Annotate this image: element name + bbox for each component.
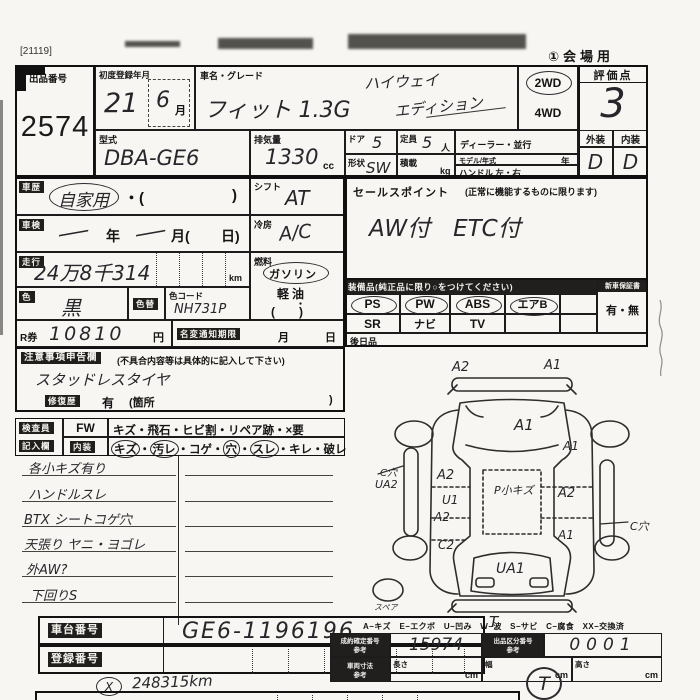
inspection-month-hand: 一 — [129, 217, 166, 249]
fw-cell: FW — [63, 418, 108, 437]
equip-navi-cell: ナビ — [400, 314, 450, 333]
width-label: 幅 — [485, 659, 493, 670]
diagram-label-right-quarter: A1 — [558, 528, 574, 542]
page-title-redacted — [218, 38, 313, 49]
margin-scribble — [652, 298, 670, 378]
note-underline — [22, 526, 176, 527]
car-name-box: 車名・グレード フィット 1.3G ハイウェイ エディション — [195, 65, 518, 130]
exterior-grade: D — [579, 148, 612, 176]
diagram-label-hood: A1 — [514, 416, 534, 434]
dims-label: 車両寸法 — [331, 662, 389, 671]
auction-no-label: 出品番号 — [29, 71, 67, 85]
first-reg-month-cell: 6 月 — [148, 79, 190, 127]
wheel-rear-right — [595, 536, 629, 560]
shape-label: 形状 — [348, 157, 365, 169]
car-name-hand2: エディション — [393, 91, 484, 121]
height-cell: 高さ cm — [572, 657, 662, 682]
rticket-label: R券 — [20, 329, 37, 344]
ref1-label: 成約確定番号 — [331, 637, 389, 646]
chassis-label-cell: 車台番号 — [40, 618, 164, 643]
item-separator: ・ — [178, 444, 190, 456]
first-reg-month: 6 — [156, 88, 170, 113]
inspection-box: 車検 一 年 一 月( 日) — [15, 215, 250, 252]
first-reg-year: 21 — [104, 88, 138, 119]
history-label: 車歴 — [19, 181, 44, 193]
diagram-label-tailgate: UA1 — [496, 561, 525, 577]
cell-divider — [382, 695, 383, 700]
fw-label: FW — [64, 419, 107, 436]
diagram-label-right-door: A2 — [558, 486, 575, 501]
warranty-value: 有・無 — [598, 295, 647, 325]
warranty-label: 新車保証書 — [598, 281, 647, 292]
equip-ps: PS — [346, 295, 399, 313]
item-separator: ・ — [212, 444, 224, 456]
drive-type-box: 2WD 4WD — [518, 65, 578, 130]
diagram-label-left-door2: A2 — [434, 510, 450, 524]
dealer-box: ディーラー・並行 — [455, 130, 578, 154]
inspection-year-label: 年 — [106, 226, 120, 246]
ref1-value-cell: 15974 — [390, 633, 482, 657]
color-value: 黒 — [61, 292, 81, 321]
color-code-label: 色コード — [169, 290, 203, 302]
reference-table: 成約確定番号 参考 15974 出品区分番号 参考 0001 車両寸法 参考 長… — [330, 633, 662, 682]
shift-label: シフト — [254, 180, 281, 193]
interior-grade: D — [614, 148, 647, 176]
inspection-label: 車検 — [19, 219, 44, 231]
ref2-value-cell: 0001 — [544, 633, 662, 657]
later-items-label: 後日品 — [350, 335, 377, 348]
inspector-rowhead1: 検査員 — [19, 422, 54, 434]
exterior-header: 外装 — [578, 130, 613, 147]
diagram-label-left-door-u: U1 — [442, 493, 458, 507]
diagram-label-right-hole: C穴 — [630, 518, 649, 534]
displacement-value: 1330 — [265, 145, 318, 169]
length-unit: cm — [465, 670, 478, 680]
note-underline — [22, 501, 176, 502]
exterior-grade-cell: D — [578, 147, 613, 177]
day-label: 日 — [325, 329, 336, 345]
car-name-value: フィット 1.3G — [204, 92, 351, 124]
warranty-box: 新車保証書 有・無 — [597, 280, 648, 333]
inspection-month-label: 月( — [171, 226, 190, 246]
auction-no-value: 2574 — [17, 111, 93, 144]
doors-label: ドア — [348, 133, 365, 145]
fuel-box: 燃料 ガソリン 軽油 ・ ( ) — [250, 252, 345, 320]
equip-airbag-cell: エアB — [505, 294, 560, 314]
notice-note: (不具合内容等は具体的に記入して下さい) — [117, 354, 285, 367]
capacity-value: 5 — [422, 133, 432, 152]
model-year-box: モデル/年式 年 — [455, 154, 578, 165]
auction-sheet: [21119] ①会場用 出品番号 2574 初度登録年月 21 6 月 車名・… — [0, 0, 700, 700]
interior-item: スレ — [250, 440, 279, 458]
name-change-box: 名変通知期限 月 日 — [172, 320, 345, 347]
mileage-value: 24万8千314 — [34, 257, 150, 286]
fw-items-cell: キズ・飛石・ヒビ割・リペア跡・×要 — [108, 418, 345, 437]
cell-divider — [156, 253, 157, 288]
wheel-front-right — [591, 421, 629, 447]
first-reg-label: 初度登録年月 — [99, 69, 150, 81]
history-paren-open: ・( — [124, 187, 144, 208]
equip-abs-cell: ABS — [450, 294, 505, 314]
note-underline — [185, 475, 333, 476]
wheel-rear-left — [393, 536, 427, 560]
diagram-label-left-quarter: C2 — [438, 538, 454, 552]
cell-divider — [347, 695, 348, 700]
interior-item: キレ — [289, 444, 312, 456]
month-label: 月 — [278, 329, 289, 345]
note-underline — [185, 576, 333, 577]
interior-item: 汚レ — [150, 440, 179, 458]
item-separator: ・ — [239, 444, 251, 456]
color-change-label: 色替 — [133, 298, 158, 310]
score-value: 3 — [580, 81, 646, 127]
notice-value: スタッドレスタイヤ — [35, 369, 170, 390]
later-items-box: 後日品 — [345, 333, 648, 347]
diagram-label-front-right: A1 — [544, 358, 561, 373]
load-unit: kg — [440, 166, 451, 176]
cell-divider — [277, 695, 278, 700]
repair-label: 修復歴 — [45, 395, 80, 407]
color-label: 色 — [19, 291, 35, 303]
name-change-label: 名変通知期限 — [177, 328, 240, 340]
interior-row-label: 内装 — [70, 441, 95, 453]
item-separator: ・ — [278, 444, 290, 456]
doors-value: 5 — [372, 133, 382, 152]
model-code-value: DBA-GE6 — [104, 146, 199, 170]
ref2-label-cell: 出品区分番号 参考 — [482, 633, 544, 657]
cell-divider — [312, 695, 313, 700]
inspection-day-label: 日) — [221, 226, 240, 246]
load-label: 積載 — [400, 157, 417, 169]
diagram-label-roof: P小キズ — [494, 482, 534, 498]
rticket-value: 10810 — [49, 323, 124, 345]
equip-navi: ナビ — [401, 315, 449, 332]
equip-airbag: エアB — [506, 295, 559, 313]
ref1-label-cell: 成約確定番号 参考 — [330, 633, 390, 657]
capacity-label: 定員 — [400, 133, 417, 145]
history-paren-close: ) — [232, 187, 237, 204]
equip-tv-cell: TV — [450, 314, 505, 333]
shift-box: シフト AT — [250, 177, 345, 215]
color-change-box: 色替 — [128, 287, 165, 320]
aircon-value: A/C — [278, 220, 313, 245]
history-box: 車歴 自家用 ・( ) — [15, 177, 250, 215]
ref-sub-label: 参考 — [331, 646, 389, 655]
cell-divider — [225, 253, 226, 288]
inspector-head-cell: 検査員 記入欄 — [15, 418, 63, 456]
damage-legend: A−キズ E−エクボ U−凹み W−波 S−サビ C−腐食 XX−交換済 — [363, 621, 624, 632]
front-bumper — [452, 378, 572, 391]
equip-tv: TV — [451, 315, 504, 332]
equip-pw: PW — [401, 295, 449, 313]
note-underline — [185, 551, 333, 552]
item-separator: ・ — [139, 444, 151, 456]
car-name-hand1: ハイウェイ — [364, 69, 440, 94]
load-box: 積載 kg — [397, 154, 455, 177]
shift-value: AT — [285, 186, 309, 210]
cell-divider — [252, 649, 253, 674]
rticket-box: R券 10810 円 — [15, 320, 172, 347]
sales-point-note: (正常に機能するものに限ります) — [465, 185, 597, 198]
diagram-label-front-left: A2 — [452, 360, 469, 375]
spare-tire — [373, 579, 403, 601]
note-underline — [22, 576, 176, 577]
handle-box: ハンドル 左・右 — [455, 165, 578, 177]
model-code-label: 型式 — [99, 133, 117, 146]
equip-blank-cell — [560, 314, 597, 333]
equipment-header: 装備品(純正品に限り○をつけてください) — [345, 280, 597, 294]
diagram-label-spare: スペア — [374, 602, 397, 613]
capacity-box: 定員 5 人 — [397, 130, 455, 154]
page-title-redacted — [348, 34, 526, 49]
repair-paren-open: (箇所 — [129, 394, 155, 410]
note-underline — [185, 602, 333, 603]
equip-ps-cell: PS — [345, 294, 400, 314]
meter-value: 248315km — [132, 672, 213, 693]
aircon-box: 冷房 A/C — [250, 215, 345, 252]
cell-divider — [417, 695, 418, 700]
ref2-value: 0001 — [545, 634, 661, 656]
note-underline — [22, 551, 176, 552]
right-rocker — [600, 460, 614, 546]
exterior-label: 外装 — [579, 131, 612, 146]
equip-blank-cell — [505, 314, 560, 333]
mileage-box: 走行 24万8千314 km — [15, 252, 250, 287]
diagram-label-left-door1: A2 — [437, 468, 454, 483]
interior-item: キズ — [111, 440, 140, 458]
model-code-box: 型式 DBA-GE6 — [95, 130, 250, 177]
color-code-box: 色コード NH731P — [165, 287, 250, 320]
interior-label: 内装 — [614, 131, 647, 146]
sales-point-label: セールスポイント — [353, 184, 449, 200]
scan-edge-artifact — [0, 100, 3, 335]
shape-box: 形状 SW — [345, 154, 397, 177]
equipment-label: 装備品(純正品に限り○をつけてください) — [348, 281, 513, 293]
inspection-year-hand: 一 — [52, 217, 89, 249]
repair-paren-close: ) — [329, 394, 333, 406]
capacity-unit: 人 — [441, 141, 450, 154]
rear-bumper — [452, 600, 572, 612]
cutoff-table — [35, 691, 520, 700]
fuel-gasoline: ガソリン — [269, 266, 317, 282]
history-value: 自家用 — [58, 186, 109, 211]
color-box: 色 黒 — [15, 287, 128, 320]
yen-label: 円 — [153, 329, 164, 345]
equip-abs: ABS — [451, 295, 504, 313]
height-label: 高さ — [575, 659, 590, 670]
inspector-rowhead2: 記入欄 — [19, 440, 54, 452]
displacement-unit: cc — [323, 161, 334, 172]
sales-point-value: AW付 ETC付 — [369, 209, 521, 243]
interior-grade-cell: D — [613, 147, 648, 177]
note-underline — [22, 602, 176, 603]
left-rocker — [404, 448, 418, 536]
registration-label-cell: 登録番号 — [40, 647, 164, 672]
roof-panel — [483, 470, 541, 534]
car-name-label: 車名・グレード — [200, 69, 263, 82]
dims-label-cell: 車両寸法 参考 — [330, 657, 390, 682]
diagram-label-left-hole: C穴 — [380, 464, 397, 479]
diagram-label-right-fender: A1 — [563, 439, 579, 453]
ref2-label: 出品区分番号 — [483, 637, 543, 646]
notice-box: 注意事項申告欄 (不具合内容等は具体的に記入して下さい) スタッドレスタイヤ 修… — [15, 347, 345, 412]
chassis-label: 車台番号 — [48, 623, 102, 638]
drive-4wd: 4WD — [519, 106, 577, 120]
equip-sr-cell: SR — [345, 314, 400, 333]
sales-point-box: セールスポイント (正常に機能するものに限ります) AW付 ETC付 — [345, 177, 648, 280]
notes-divider — [178, 456, 179, 625]
first-reg-box: 初度登録年月 21 6 月 — [95, 65, 195, 130]
cell-divider — [202, 253, 203, 288]
displacement-box: 排気量 1330 cc — [250, 130, 345, 177]
interior-item: 破レ — [324, 444, 347, 456]
interior-item: コゲ — [189, 444, 212, 456]
diagram-label-left-rocker: UA2 — [375, 478, 398, 491]
month-suffix: 月 — [175, 102, 186, 118]
repair-value: 有 — [102, 394, 114, 411]
ref-sub-label: 参考 — [483, 646, 543, 655]
height-unit: cm — [645, 670, 658, 680]
equip-pw-cell: PW — [400, 294, 450, 314]
aircon-label: 冷房 — [254, 218, 272, 231]
registration-label: 登録番号 — [48, 652, 102, 667]
fw-items: キズ・飛石・ヒビ割・リペア跡・×要 — [113, 422, 304, 438]
note-underline — [185, 501, 333, 502]
ref1-value: 15974 — [391, 634, 481, 656]
color-code-value: NH731P — [174, 302, 226, 317]
drive-2wd: 2WD — [519, 76, 577, 90]
interior-row-cell: 内装 — [63, 437, 108, 456]
wheel-front-left — [395, 421, 433, 447]
item-separator: ・ — [312, 444, 324, 456]
doors-box: ドア 5 — [345, 130, 397, 154]
cell-divider — [179, 253, 180, 288]
chassis-value: GE6-1196196 — [182, 619, 355, 644]
length-label: 長さ — [393, 659, 408, 670]
note-underline — [185, 526, 333, 527]
length-cell: 長さ cm — [390, 657, 482, 682]
page-title-redacted — [125, 41, 180, 47]
equip-sr: SR — [346, 315, 399, 332]
note-underline — [22, 475, 176, 476]
interior-items-cell: キズ・汚レ・コゲ・穴・スレ・キレ・破レ — [108, 437, 345, 456]
auction-no-box: 出品番号 2574 — [15, 65, 95, 177]
ref-sub-label: 参考 — [331, 671, 389, 680]
equip-blank-cell — [560, 294, 597, 314]
corner-code: [21119] — [20, 46, 52, 57]
t-circle-value: T — [528, 669, 560, 698]
shape-value: SW — [366, 159, 390, 177]
cell-divider — [288, 649, 289, 674]
mileage-unit: km — [229, 273, 242, 283]
interior-header: 内装 — [613, 130, 648, 147]
dealer-label: ディーラー・並行 — [460, 138, 531, 151]
notice-label: 注意事項申告欄 — [21, 352, 101, 364]
cell-divider — [324, 649, 325, 674]
venue-label: ①会場用 — [548, 46, 614, 65]
interior-item: 穴 — [223, 440, 241, 458]
t-circle: T — [526, 667, 562, 700]
fuel-paren: ( ) — [271, 303, 303, 320]
